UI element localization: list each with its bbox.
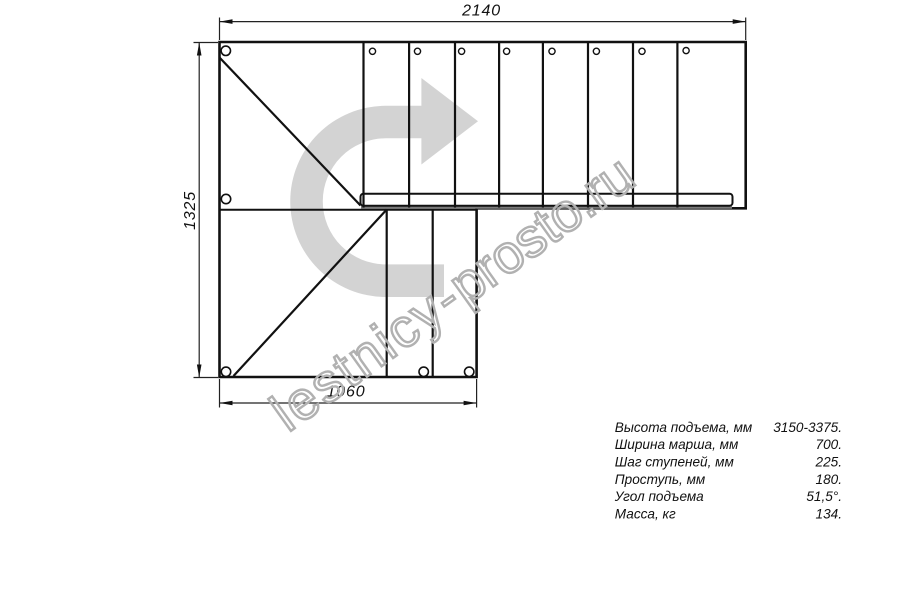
svg-text:3150-3375.: 3150-3375.	[773, 420, 842, 435]
svg-text:180.: 180.	[816, 472, 842, 487]
svg-text:Ширина марша, мм: Ширина марша, мм	[615, 437, 739, 452]
svg-text:Шаг ступеней, мм: Шаг ступеней, мм	[615, 455, 735, 470]
svg-text:1325: 1325	[182, 191, 199, 230]
svg-text:51,5°.: 51,5°.	[806, 489, 842, 504]
svg-text:Угол подъема: Угол подъема	[614, 489, 704, 504]
svg-text:Проступь, мм: Проступь, мм	[615, 472, 706, 487]
svg-text:2140: 2140	[461, 3, 501, 20]
svg-text:Масса, кг: Масса, кг	[615, 506, 676, 521]
svg-text:Высота подъема, мм: Высота подъема, мм	[615, 420, 753, 435]
svg-text:700.: 700.	[816, 437, 842, 452]
svg-text:134.: 134.	[816, 506, 842, 521]
svg-text:225.: 225.	[815, 455, 842, 470]
